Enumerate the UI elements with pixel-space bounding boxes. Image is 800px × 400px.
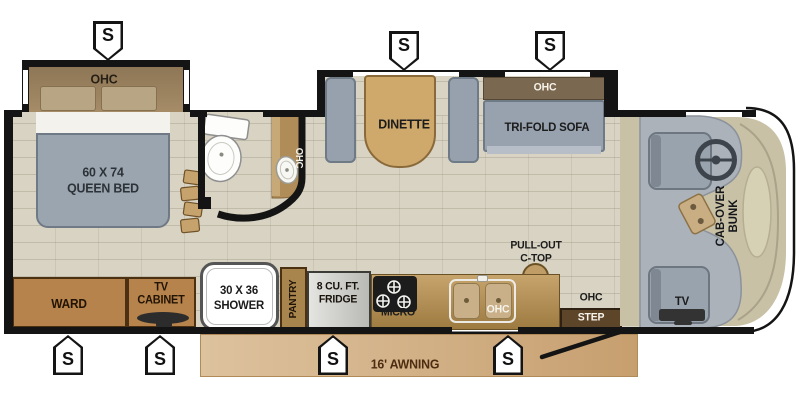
tv-cabinet-label-line2: CABINET: [137, 295, 184, 307]
awning-label: 16' AWNING: [371, 358, 440, 371]
dinette-label: DINETTE: [378, 118, 430, 131]
ward-label: WARD: [51, 298, 87, 311]
entry-ohc-label: OHC: [580, 293, 603, 304]
rv-floorplan: OHC 60 X 74 QUEEN BED OHC DINETTE OHC TR…: [0, 0, 800, 400]
bathroom-ohc-label: OHC: [293, 148, 303, 169]
step-label: STEP: [578, 313, 605, 324]
tv-cabinet-label-line1: TV: [154, 282, 168, 294]
slide-marker-dinette: S: [389, 31, 419, 71]
tri-fold-sofa-label: TRI-FOLD SOFA: [505, 121, 590, 133]
slide-marker-kitchen-right: S: [493, 335, 523, 375]
micro-label: MICRO: [381, 308, 415, 319]
slide-marker-sofa: S: [535, 31, 565, 71]
slide-marker-kitchen-left: S: [318, 335, 348, 375]
entry-door-swing-line: [542, 330, 626, 357]
queen-bed-label-line1: 60 X 74: [82, 166, 123, 179]
slide-marker-bedroom: S: [93, 21, 123, 61]
sink-ohc-label: OHC: [487, 305, 510, 316]
shower-label-line2: SHOWER: [214, 299, 264, 311]
shower-label-line1: 30 X 36: [220, 284, 258, 296]
sofa-ohc-label: OHC: [534, 83, 557, 94]
pullout-ctop-label-line1: PULL-OUT: [510, 241, 561, 252]
fridge-label-line2: FRIDGE: [319, 295, 357, 306]
queen-bed-label-line2: QUEEN BED: [67, 182, 139, 195]
pantry-label: PANTRY: [288, 280, 299, 319]
dash-console: [743, 167, 771, 257]
cab-tv-label: TV: [675, 295, 689, 307]
slide-marker-ward: S: [53, 335, 83, 375]
cab-over-bunk-label: CAB-OVER BUNK: [714, 186, 740, 247]
pullout-ctop-label-line2: C-TOP: [520, 254, 551, 265]
slide-marker-tv-cabinet: S: [145, 335, 175, 375]
bedroom-ohc-label: OHC: [91, 73, 118, 86]
fridge-label-line1: 8 CU. FT.: [317, 282, 359, 293]
